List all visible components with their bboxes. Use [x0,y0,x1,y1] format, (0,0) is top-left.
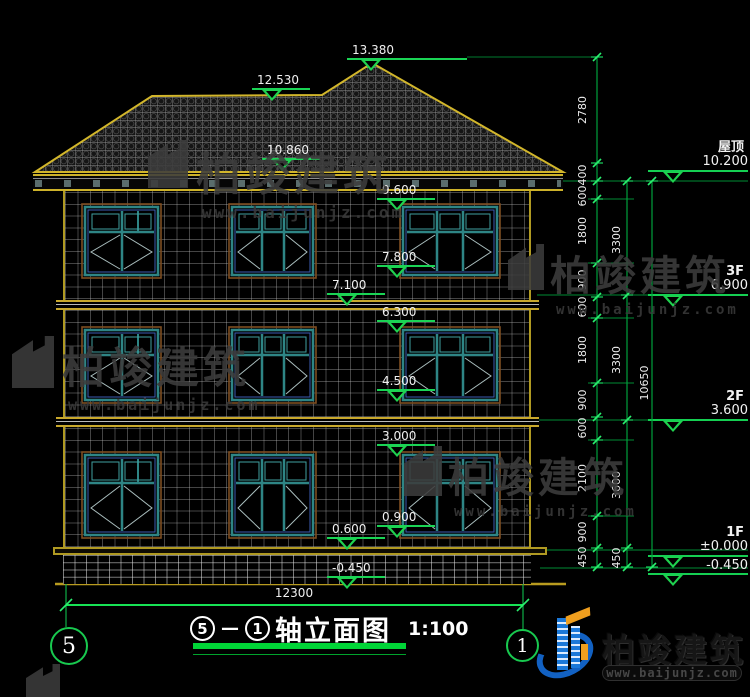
level-triangle-icon [663,575,683,586]
watermark-left: 柏竣建筑 www.baijunjz.com [12,334,261,414]
level-triangle-icon [337,578,357,589]
level-triangle-icon [663,172,683,183]
storey-level-roof: 屋顶10.200 [655,141,750,169]
dim-label: 2780 [576,88,590,132]
level-marker-w3-bottom: 7.800 [377,250,435,280]
overall-width-dim: 12300 [254,586,334,600]
watermark-top: 柏竣建筑 www.baijunjz.com [148,138,404,222]
title-dash: — [221,618,239,639]
company-logo: 柏竣建筑 www.baijunjz.com [535,608,750,697]
logo-url-text: www.baijunjz.com [602,665,742,681]
storey-level-1f: 1F±0.000 [655,526,750,554]
watermark-logo-icon [148,140,188,188]
level-marker-w2-top: 6.300 [377,305,435,335]
storey-level-2f: 2F3.600 [655,390,750,418]
dim-label: 1800 [576,328,590,372]
level-triangle-icon [387,267,407,278]
window-1f-left [81,451,162,539]
plinth-band [53,547,547,555]
level-marker-ridge-left: 12.530 [252,73,310,103]
level-triangle-icon [361,60,381,71]
level-triangle-icon [387,322,407,333]
dim-label-overall-height: 10650 [638,353,652,413]
watermark-logo-icon [508,244,544,290]
logo-building-icon [571,626,580,668]
level-marker-w2-bottom: 4.500 [377,374,435,404]
level-triangle-icon [337,539,357,550]
level-triangle-icon [262,90,282,101]
dim-label: 450 [576,535,590,579]
grid-bubble-5: 5 [50,627,88,665]
level-marker-ground: -0.450 [327,561,385,591]
axis-circle-start: 5 [190,616,215,641]
level-marker-slab-3f: 7.100 [327,278,385,308]
plinth-brick [63,555,531,584]
title-underline-line [193,654,406,655]
dim-label: 450 [610,536,624,580]
storey-level-minus: -0.450 [655,559,750,573]
cad-elevation-drawing: 13.380 12.530 10.860 9.600 7.800 7.100 6… [0,0,750,697]
floor-slab-2f [56,417,539,427]
logo-building-icon [557,618,568,670]
title-scale: 1:100 [408,618,468,640]
watermark-bottom-left [26,664,60,697]
dim-label: 3300 [610,338,624,382]
watermark-right: 柏竣建筑 www.baijunjz.com [508,242,739,318]
level-marker-plinth: 0.600 [327,522,385,552]
level-triangle-icon [337,295,357,306]
watermark-logo-icon [404,446,442,496]
window-1f-center [228,451,317,539]
watermark-logo-icon [12,336,54,388]
level-marker-ridge-peak: 13.380 [347,43,467,73]
watermark-logo-icon [26,664,60,697]
logo-accent-icon [581,644,588,660]
title-underline-bar [193,643,406,649]
watermark-center-low: 柏竣建筑 www.baijunjz.com [404,444,637,520]
level-triangle-icon [387,527,407,538]
floor-slab-3f [56,300,539,310]
axis-circle-end: 1 [245,616,270,641]
level-triangle-icon [387,391,407,402]
level-triangle-icon [663,421,683,432]
logo-roof-icon [566,607,591,625]
